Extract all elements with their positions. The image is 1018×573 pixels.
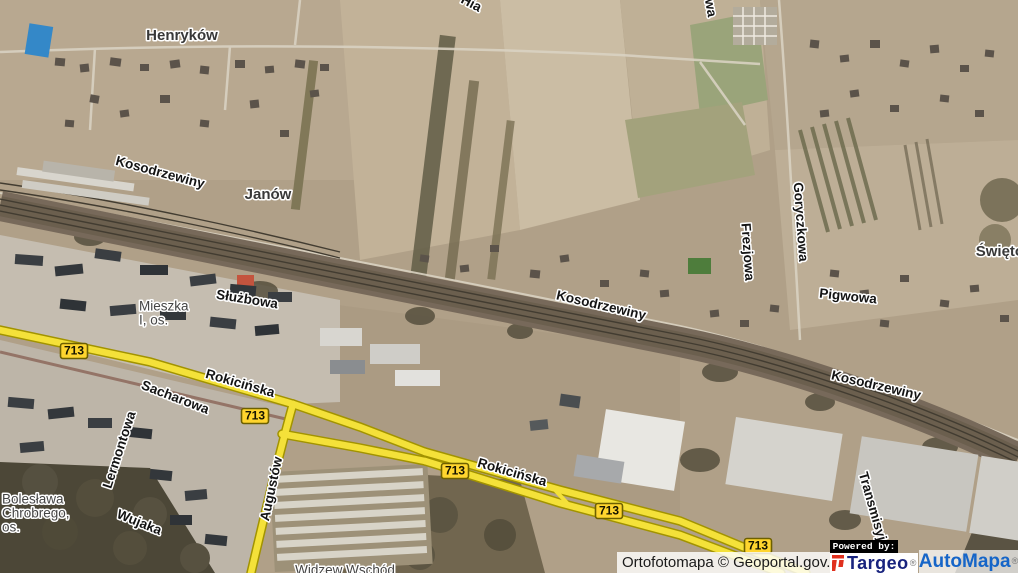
place-label-bolesława: Bolesława [2,492,64,507]
building [20,441,45,453]
map-attribution-text: Ortofotomapa © Geoportal.gov.pl [617,552,837,573]
building [930,45,940,54]
svg-text:713: 713 [599,504,619,518]
route-badge-713: 713 [442,464,469,479]
building [185,489,208,501]
building [15,254,44,266]
building [89,94,99,103]
building [830,270,840,278]
building [310,89,320,97]
building [200,66,210,75]
place-label-i-os: I, os. [139,313,168,328]
targeo-logo[interactable]: Targeo ® [830,553,918,573]
building [900,59,910,67]
building [140,265,168,275]
building [810,40,820,49]
building [820,110,830,118]
building [120,109,130,117]
svg-text:713: 713 [245,409,265,423]
building [460,265,470,273]
building [900,275,909,282]
building [740,320,749,327]
building [160,95,170,103]
building [140,64,149,71]
building [660,290,670,298]
building [250,100,260,109]
building [600,280,609,287]
building [295,59,306,68]
place-label-widzew-wschód: Widzew Wschód [295,563,395,573]
building [530,269,541,278]
place-label-chrobrego: Chrobrego, [2,506,70,521]
cemetery-area [733,7,777,45]
building [420,254,430,262]
building [940,299,950,307]
powered-by-label: Powered by: [830,540,898,553]
building [880,320,890,328]
building [890,105,899,112]
sports-field [688,258,711,274]
automapa-registered-mark: ® [1012,557,1018,566]
building [970,285,980,293]
blue-roof-building [25,23,54,57]
building [65,120,75,128]
route-badge-713: 713 [596,504,623,519]
building [530,419,549,431]
svg-text:713: 713 [445,464,465,478]
building [975,110,984,117]
svg-text:713: 713 [748,539,768,553]
building [1000,315,1009,322]
building [490,245,499,252]
targeo-logo-mark [832,555,845,571]
building [770,305,780,313]
route-badge-713: 713 [61,344,88,359]
building [640,270,650,278]
targeo-registered-mark: ® [910,559,917,568]
svg-text:713: 713 [64,344,84,358]
building [710,310,720,318]
building [560,254,570,262]
targeo-logo-text: Targeo [847,554,909,572]
automapa-logo-text: AutoMapa [919,552,1011,571]
building [850,89,860,97]
automapa-logo[interactable]: AutoMapa ® [919,550,1018,573]
building [80,64,90,73]
place-label-mieszka: Mieszka [139,299,189,314]
building [109,57,121,66]
building [840,55,850,63]
building [169,59,180,68]
place-label-świętoł: Świętoł [976,242,1018,260]
building [265,66,275,74]
building [960,65,969,72]
satellite-map-viewport[interactable]: HenrykówKosodrzewinyJanówHiawaGoryczkowa… [0,0,1018,573]
building [200,120,210,128]
satellite-map-canvas[interactable]: HenrykówKosodrzewinyJanówHiawaGoryczkowa… [0,0,1018,573]
building [255,324,280,336]
building [940,95,950,103]
route-badge-713: 713 [242,409,269,424]
place-label-janów: Janów [245,186,292,203]
building [235,60,245,68]
building [985,50,995,58]
building [320,64,329,71]
building [88,418,112,428]
building [170,515,192,525]
place-label-os: os. [2,520,20,535]
building [55,58,66,67]
place-label-henryków: Henryków [146,27,218,44]
building [870,40,880,48]
building [280,130,289,137]
